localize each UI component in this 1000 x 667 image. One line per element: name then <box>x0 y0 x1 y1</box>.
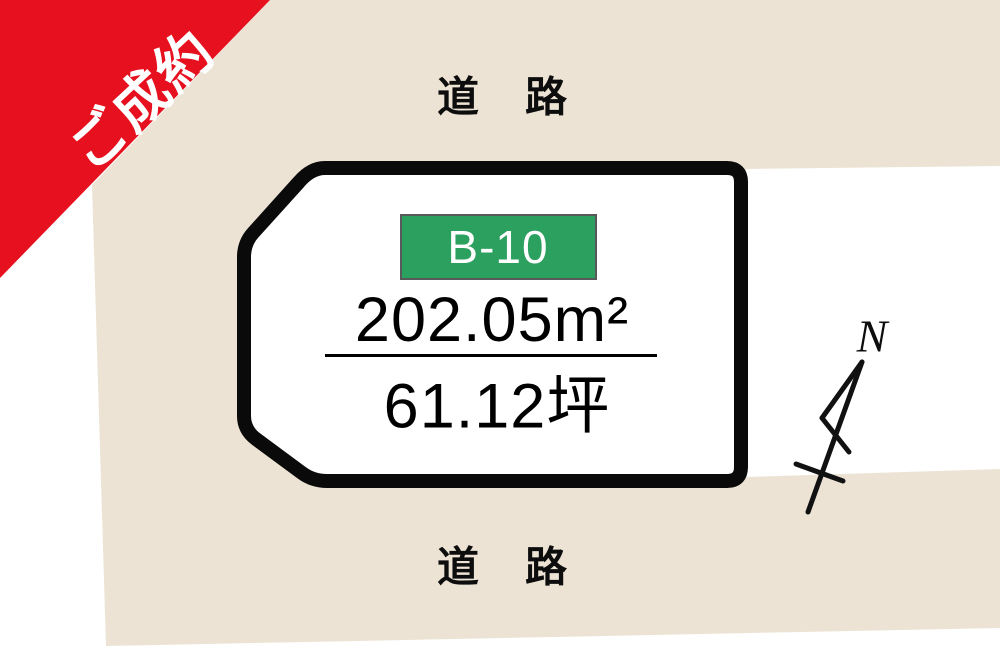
north-label: N <box>857 310 888 363</box>
lot-area-tsubo: 61.12坪 <box>384 356 611 447</box>
lot-area-sqm: 202.05m² <box>355 284 629 356</box>
road-label-bottom: 道 路 <box>437 534 569 595</box>
lot-id-label: B-10 <box>447 220 548 274</box>
road-label-top: 道 路 <box>437 64 569 125</box>
site-plan: ご成約 道 路 道 路 B-10 202.05m² 61.12坪 N <box>0 0 1000 667</box>
